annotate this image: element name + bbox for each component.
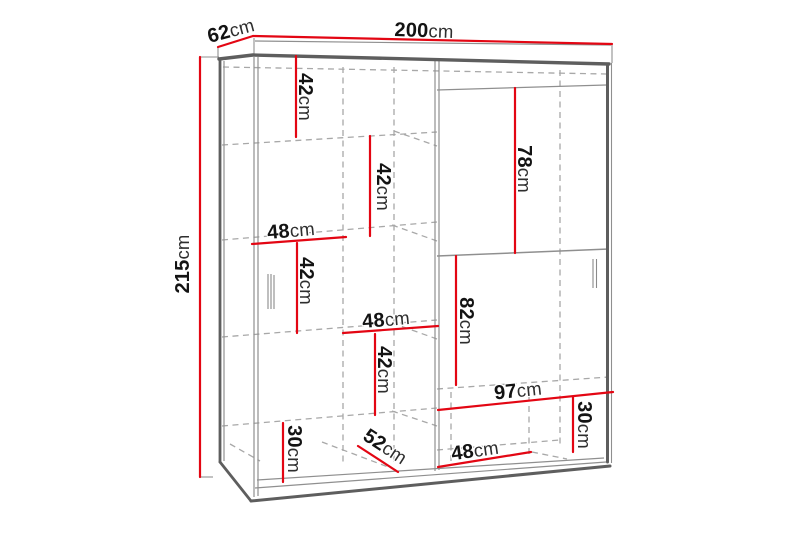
dim-height-value: 215 bbox=[172, 260, 194, 294]
dim-left-bottom-value: 30 bbox=[283, 425, 305, 448]
dim-label-height: 215cm bbox=[173, 234, 193, 293]
dim-mid-col-width-value: 48 bbox=[361, 309, 385, 333]
dim-height-unit: cm bbox=[172, 234, 193, 259]
outer-frame bbox=[219, 55, 610, 501]
dim-right-top-value: 78 bbox=[513, 145, 535, 168]
dim-label-mid-col-lower-height: 42cm bbox=[374, 346, 394, 394]
dim-left-col-width-unit: cm bbox=[289, 218, 316, 241]
dim-label-mid-col-upper-height: 42cm bbox=[373, 163, 393, 211]
door-handles bbox=[268, 259, 597, 309]
dim-right-mid-unit: cm bbox=[456, 320, 477, 345]
dim-right-bottom-width-value: 48 bbox=[450, 440, 475, 465]
dim-left-bottom-unit: cm bbox=[284, 448, 305, 473]
dim-label-right-bottom-height: 30cm bbox=[574, 401, 594, 449]
dimension-ticks bbox=[200, 38, 612, 477]
dimension-lines bbox=[200, 36, 613, 482]
dim-right-top-unit: cm bbox=[514, 168, 535, 193]
dim-mid-col-lower-value: 42 bbox=[373, 346, 395, 369]
dim-mid-col-lower-unit: cm bbox=[374, 369, 395, 394]
dim-width-unit: cm bbox=[428, 20, 454, 42]
dim-left-col-top-value: 42 bbox=[294, 73, 316, 96]
dim-label-left-col-top-height: 42cm bbox=[295, 73, 315, 121]
dim-right-bottom-height-unit: cm bbox=[574, 424, 595, 449]
dim-right-section-width-unit: cm bbox=[516, 378, 543, 402]
dim-label-width: 200cm bbox=[394, 20, 454, 42]
dim-label-right-mid-height: 82cm bbox=[456, 297, 476, 345]
dim-right-bottom-width-unit: cm bbox=[472, 437, 500, 461]
dim-label-left-col-width: 48cm bbox=[266, 219, 315, 243]
dim-width-value: 200 bbox=[394, 19, 429, 42]
dim-label-left-col-mid-height: 42cm bbox=[296, 257, 316, 305]
dim-left-col-mid-unit: cm bbox=[296, 280, 317, 305]
dim-left-col-top-unit: cm bbox=[295, 96, 316, 121]
dim-label-mid-col-width: 48cm bbox=[361, 308, 410, 332]
dim-mid-col-upper-unit: cm bbox=[373, 186, 394, 211]
dim-mid-col-upper-value: 42 bbox=[372, 163, 394, 186]
dim-mid-col-width-unit: cm bbox=[384, 307, 411, 330]
dim-right-bottom-height-value: 30 bbox=[573, 401, 595, 424]
dim-right-section-width-value: 97 bbox=[493, 380, 518, 404]
hidden-shelf-lines bbox=[222, 67, 609, 470]
dim-left-col-mid-value: 42 bbox=[295, 257, 317, 280]
dim-label-left-bottom-height: 30cm bbox=[284, 425, 304, 473]
dim-right-mid-value: 82 bbox=[455, 297, 477, 320]
dim-left-col-width-value: 48 bbox=[266, 220, 290, 244]
dim-label-right-top-height: 78cm bbox=[514, 145, 534, 193]
wardrobe-dimension-diagram: 62cm 200cm 215cm 42cm 42cm 48cm 42cm 48c… bbox=[0, 0, 800, 533]
